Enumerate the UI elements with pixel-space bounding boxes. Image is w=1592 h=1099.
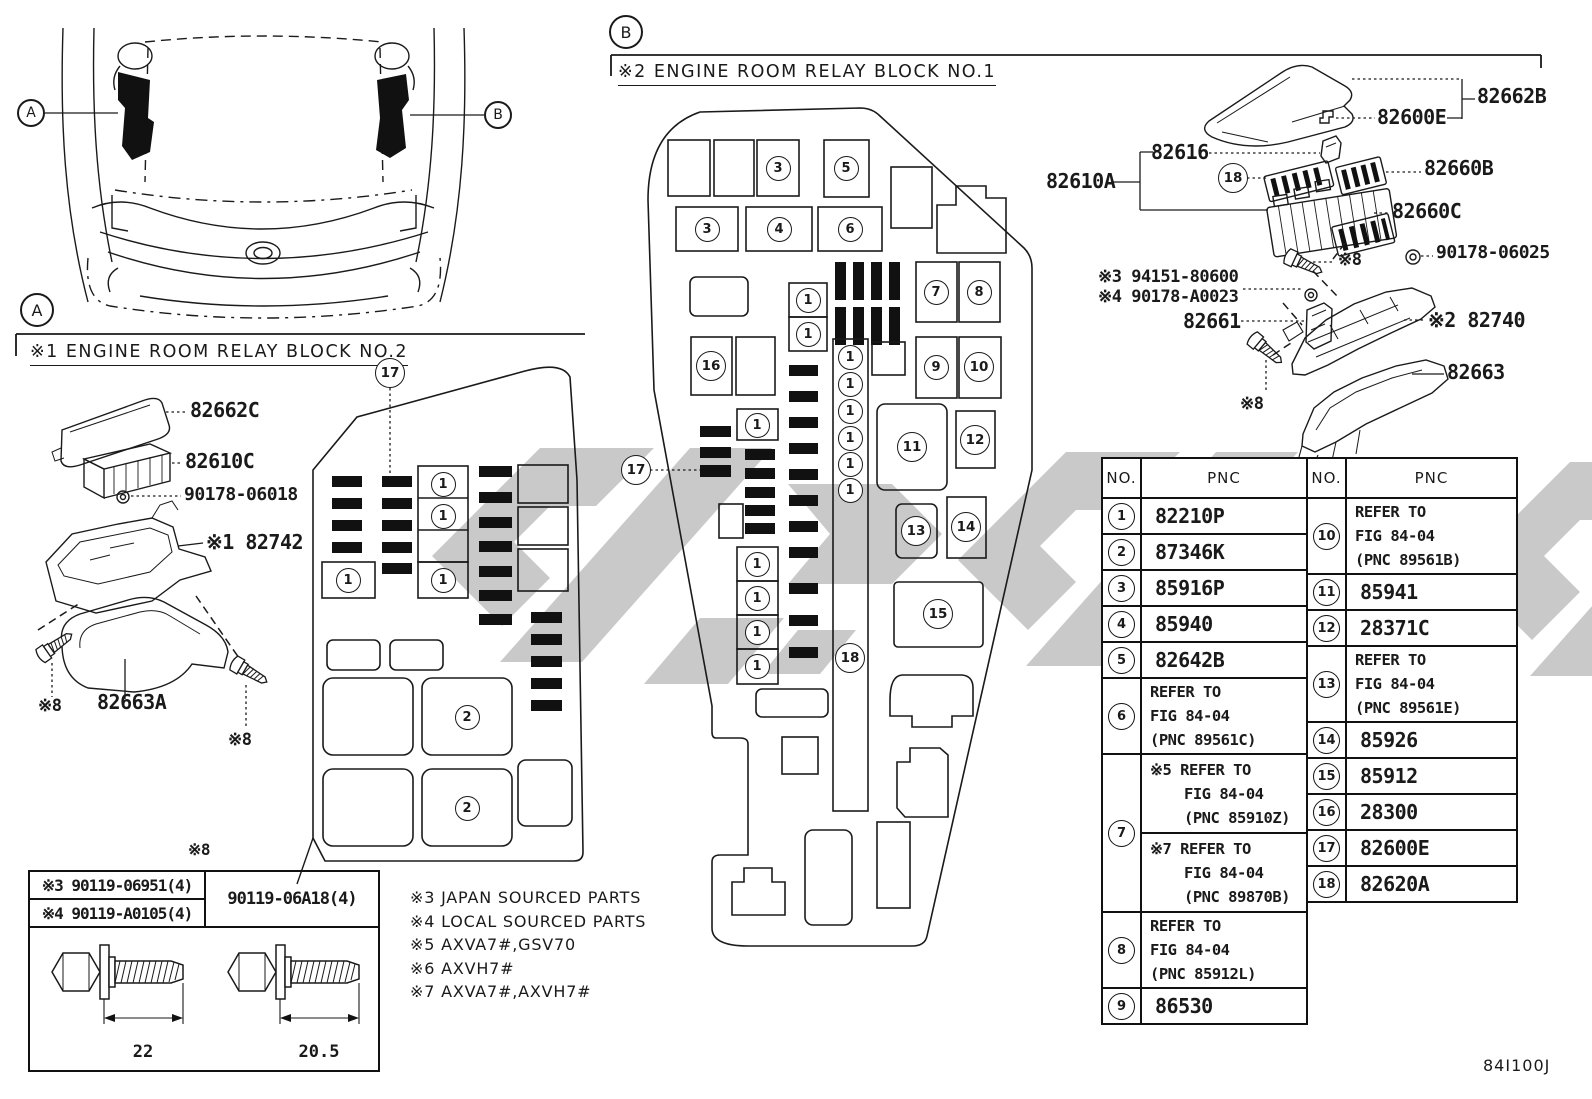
row-no-cell: 2 (1103, 535, 1142, 569)
row-number: 3 (1108, 575, 1135, 602)
callout-1: 1 (796, 322, 821, 347)
pnc-text: REFER TO (1347, 500, 1516, 524)
no-column-header: NO. (1103, 459, 1142, 497)
pnc-cell[interactable]: 28300 (1347, 795, 1516, 829)
part-label-82663[interactable]: 82663 (1447, 362, 1505, 383)
row-number: 1 (1108, 503, 1135, 530)
part-label-note8-b2[interactable]: ※8 (1240, 396, 1263, 414)
part-label-82610c[interactable]: 82610C (185, 451, 254, 472)
pnc-text: 28371C (1347, 616, 1516, 640)
pnc-text: 86530 (1142, 994, 1306, 1018)
row-no-cell: 14 (1308, 723, 1347, 757)
parts-row-1[interactable]: 182210P (1103, 497, 1306, 533)
row-no-cell: 3 (1103, 571, 1142, 605)
pnc-text: (PNC 89561B) (1347, 548, 1516, 572)
pnc-subcell: ※7 REFER TOFIG 84-04(PNC 89870B) (1142, 834, 1306, 911)
callout-6: 6 (838, 217, 863, 242)
diagram-code: 84I100J (1483, 1056, 1550, 1075)
parts-row-12[interactable]: 1228371C (1308, 609, 1516, 645)
row-number: 2 (1108, 539, 1135, 566)
bolt-part-number[interactable]: ※3 90119-06951(4) (30, 872, 204, 900)
pnc-text: ※7 REFER TO (1142, 837, 1306, 861)
parts-diagram-page: A B A B ※1 ENGINE ROOM RELAY BLOCK NO.2 … (0, 0, 1592, 1099)
callout-14: 14 (951, 512, 981, 542)
pnc-cell[interactable]: 82600E (1347, 831, 1516, 865)
pnc-text: (PNC 89561E) (1347, 696, 1516, 720)
parts-row-10[interactable]: 10REFER TOFIG 84-04(PNC 89561B) (1308, 497, 1516, 573)
pnc-cell[interactable]: 87346K (1142, 535, 1306, 569)
parts-row-2[interactable]: 287346K (1103, 533, 1306, 569)
pnc-text: (PNC 85910Z) (1142, 806, 1306, 830)
pnc-cell[interactable]: 82642B (1142, 643, 1306, 677)
part-label-note8-a1[interactable]: ※8 (38, 698, 61, 716)
row-number: 12 (1313, 615, 1340, 642)
pnc-cell[interactable]: 85926 (1347, 723, 1516, 757)
note-line: ※5 AXVA7#,GSV70 (410, 933, 646, 957)
row-no-cell: 10 (1308, 499, 1347, 573)
callout-18: 18 (1218, 163, 1248, 193)
row-no-cell: 8 (1103, 913, 1142, 987)
bolt-length-dimension: 22 (133, 1042, 153, 1062)
callout-1: 1 (838, 372, 863, 397)
pnc-cell[interactable]: REFER TOFIG 84-04(PNC 89561C) (1142, 679, 1306, 753)
part-label-82662b[interactable]: 82662B (1477, 86, 1546, 107)
row-number: 10 (1313, 523, 1340, 550)
bolt-length-dimension: 20.5 (299, 1042, 340, 1062)
callout-13: 13 (901, 516, 931, 546)
callout-17: 17 (375, 358, 405, 388)
part-label-note8-b1[interactable]: ※8 (1338, 252, 1361, 270)
row-no-cell: 13 (1308, 647, 1347, 721)
pnc-text: (PNC 89870B) (1142, 885, 1306, 909)
pnc-cell[interactable]: 28371C (1347, 611, 1516, 645)
parts-row-9[interactable]: 986530 (1103, 987, 1306, 1023)
callout-1: 1 (745, 586, 770, 611)
row-number: 11 (1313, 579, 1340, 606)
parts-table-right: NO. PNC 10REFER TOFIG 84-04(PNC 89561B)1… (1306, 457, 1518, 903)
callout-1: 1 (431, 472, 456, 497)
pnc-cell[interactable]: 82620A (1347, 867, 1516, 901)
part-label-94151-80600[interactable]: ※3 94151-80600 (1098, 269, 1238, 287)
pnc-text: 82642B (1142, 648, 1306, 672)
pnc-cell[interactable]: 85916P (1142, 571, 1306, 605)
callout-1: 1 (838, 345, 863, 370)
row-number: 16 (1313, 799, 1340, 826)
callout-1: 1 (336, 568, 361, 593)
pnc-subcell: ※5 REFER TOFIG 84-04(PNC 85910Z) (1142, 755, 1306, 834)
callout-1: 1 (431, 504, 456, 529)
parts-row-7[interactable]: 7※5 REFER TOFIG 84-04(PNC 85910Z)※7 REFE… (1103, 753, 1306, 911)
parts-row-4[interactable]: 485940 (1103, 605, 1306, 641)
section-b-marker: B (609, 15, 643, 49)
pnc-text: 82210P (1142, 504, 1306, 528)
pnc-column-header: PNC (1142, 459, 1306, 497)
callout-10: 10 (964, 352, 994, 382)
row-no-cell: 7 (1103, 755, 1142, 911)
row-no-cell: 17 (1308, 831, 1347, 865)
part-label-82660b[interactable]: 82660B (1424, 158, 1493, 179)
bolt-part-number[interactable]: 90119-06A18(4) (206, 872, 378, 926)
callout-1: 1 (838, 426, 863, 451)
row-number: 7 (1108, 820, 1135, 847)
pnc-cell[interactable]: 85912 (1347, 759, 1516, 793)
pnc-text: FIG 84-04 (1347, 672, 1516, 696)
no-column-header: NO. (1308, 459, 1347, 497)
callout-1: 1 (838, 452, 863, 477)
pnc-text: REFER TO (1142, 680, 1306, 704)
row-no-cell: 6 (1103, 679, 1142, 753)
row-number: 4 (1108, 611, 1135, 638)
part-label-82610a[interactable]: 82610A (1046, 171, 1115, 192)
note-line: ※6 AXVH7# (410, 957, 646, 981)
callout-15: 15 (923, 599, 953, 629)
pnc-column-header: PNC (1347, 459, 1516, 497)
note-line: ※3 JAPAN SOURCED PARTS (410, 886, 646, 910)
pnc-text: 82620A (1347, 872, 1516, 896)
parts-table-left: NO. PNC 182210P287346K385916P48594058264… (1101, 457, 1308, 1025)
row-no-cell: 15 (1308, 759, 1347, 793)
callout-1: 1 (745, 654, 770, 679)
callout-3: 3 (766, 156, 791, 181)
parts-row-14[interactable]: 1485926 (1308, 721, 1516, 757)
part-label-90178-06018[interactable]: 90178-06018 (184, 486, 298, 505)
row-no-cell: 5 (1103, 643, 1142, 677)
callout-3: 3 (695, 217, 720, 242)
car-callout-b: B (484, 101, 512, 129)
callout-1: 1 (745, 620, 770, 645)
row-number: 15 (1313, 763, 1340, 790)
part-label-82662c[interactable]: 82662C (190, 400, 259, 421)
row-number: 8 (1108, 937, 1135, 964)
callout-12: 12 (960, 425, 990, 455)
callout-1: 1 (838, 399, 863, 424)
pnc-text: REFER TO (1347, 648, 1516, 672)
callout-4: 4 (767, 217, 792, 242)
section-a-marker: A (20, 293, 54, 327)
callout-9: 9 (924, 355, 949, 380)
part-label-82661[interactable]: 82661 (1183, 311, 1241, 332)
pnc-text: FIG 84-04 (1142, 938, 1306, 962)
row-number: 14 (1313, 727, 1340, 754)
section-a-title: ※1 ENGINE ROOM RELAY BLOCK NO.2 (30, 342, 408, 366)
pnc-text: ※5 REFER TO (1142, 758, 1306, 782)
row-number: 5 (1108, 647, 1135, 674)
pnc-text: REFER TO (1142, 914, 1306, 938)
callout-11: 11 (897, 432, 927, 462)
row-number: 13 (1313, 671, 1340, 698)
pnc-text: 85940 (1142, 612, 1306, 636)
row-no-cell: 12 (1308, 611, 1347, 645)
parts-row-8[interactable]: 8REFER TOFIG 84-04(PNC 85912L) (1103, 911, 1306, 987)
note-line: ※7 AXVA7#,AXVH7# (410, 980, 646, 1004)
pnc-text: (PNC 89561C) (1142, 728, 1306, 752)
callout-7: 7 (924, 280, 949, 305)
row-no-cell: 9 (1103, 989, 1142, 1023)
parts-row-16[interactable]: 1628300 (1308, 793, 1516, 829)
pnc-text: 82600E (1347, 836, 1516, 860)
part-label-90178-a0023[interactable]: ※4 90178-A0023 (1098, 289, 1238, 307)
car-callout-a: A (17, 99, 45, 127)
pnc-text: 85941 (1347, 580, 1516, 604)
part-label-82742[interactable]: ※1 82742 (206, 532, 303, 553)
bolt-table-header: ※3 90119-06951(4) ※4 90119-A0105(4) 9011… (30, 872, 378, 928)
callout-17: 17 (621, 455, 651, 485)
callout-2: 2 (455, 705, 480, 730)
parts-row-5[interactable]: 582642B (1103, 641, 1306, 677)
pnc-cell[interactable]: 86530 (1142, 989, 1306, 1023)
callout-5: 5 (834, 156, 859, 181)
part-label-90178-06025[interactable]: 90178-06025 (1436, 244, 1550, 263)
part-label-82600e[interactable]: 82600E (1377, 107, 1446, 128)
pnc-cell[interactable]: 82210P (1142, 499, 1306, 533)
parts-row-17[interactable]: 1782600E (1308, 829, 1516, 865)
row-number: 18 (1313, 871, 1340, 898)
callout-1: 1 (796, 288, 821, 313)
part-label-note8-a2[interactable]: ※8 (228, 732, 251, 750)
row-number: 9 (1108, 993, 1135, 1020)
parts-row-6[interactable]: 6REFER TOFIG 84-04(PNC 89561C) (1103, 677, 1306, 753)
pnc-text: FIG 84-04 (1142, 704, 1306, 728)
row-no-cell: 11 (1308, 575, 1347, 609)
row-number: 17 (1313, 835, 1340, 862)
callout-8: 8 (967, 280, 992, 305)
callout-16: 16 (696, 351, 726, 381)
pnc-cell[interactable]: REFER TOFIG 84-04(PNC 89561E) (1347, 647, 1516, 721)
pnc-text: FIG 84-04 (1142, 861, 1306, 885)
pnc-cell[interactable]: REFER TOFIG 84-04(PNC 85912L) (1142, 913, 1306, 987)
parts-row-13[interactable]: 13REFER TOFIG 84-04(PNC 89561E) (1308, 645, 1516, 721)
part-label-82663a[interactable]: 82663A (97, 692, 166, 713)
part-label-82616[interactable]: 82616 (1151, 142, 1209, 163)
car-front-drawing (62, 28, 465, 318)
pnc-cell[interactable]: REFER TOFIG 84-04(PNC 89561B) (1347, 499, 1516, 573)
callout-1: 1 (838, 478, 863, 503)
note-line: ※4 LOCAL SOURCED PARTS (410, 910, 646, 934)
callout-18: 18 (835, 643, 865, 673)
pnc-text: 28300 (1347, 800, 1516, 824)
pnc-text: 85912 (1347, 764, 1516, 788)
part-label-note8-table[interactable]: ※8 (188, 842, 210, 859)
section-b-title: ※2 ENGINE ROOM RELAY BLOCK NO.1 (618, 62, 996, 86)
section-brackets (16, 55, 1541, 356)
parts-row-15[interactable]: 1585912 (1308, 757, 1516, 793)
pnc-cell[interactable]: ※5 REFER TOFIG 84-04(PNC 85910Z)※7 REFER… (1142, 755, 1306, 911)
row-number: 6 (1108, 703, 1135, 730)
parts-row-18[interactable]: 1882620A (1308, 865, 1516, 901)
pnc-text: FIG 84-04 (1347, 524, 1516, 548)
bolt-part-number[interactable]: ※4 90119-A0105(4) (30, 900, 204, 926)
pnc-text: 85916P (1142, 576, 1306, 600)
pnc-text: 87346K (1142, 540, 1306, 564)
callout-1: 1 (745, 552, 770, 577)
notes-list: ※3 JAPAN SOURCED PARTS ※4 LOCAL SOURCED … (410, 886, 646, 1004)
pnc-cell[interactable]: 85940 (1142, 607, 1306, 641)
pnc-text: (PNC 85912L) (1142, 962, 1306, 986)
parts-row-3[interactable]: 385916P (1103, 569, 1306, 605)
row-no-cell: 18 (1308, 867, 1347, 901)
callout-1: 1 (745, 413, 770, 438)
callout-1: 1 (431, 568, 456, 593)
part-label-82660c[interactable]: 82660C (1392, 201, 1461, 222)
row-no-cell: 1 (1103, 499, 1142, 533)
parts-row-11[interactable]: 1185941 (1308, 573, 1516, 609)
pnc-cell[interactable]: 85941 (1347, 575, 1516, 609)
pnc-text: 85926 (1347, 728, 1516, 752)
row-no-cell: 4 (1103, 607, 1142, 641)
callout-2: 2 (455, 796, 480, 821)
part-label-82740[interactable]: ※2 82740 (1428, 310, 1525, 331)
row-no-cell: 16 (1308, 795, 1347, 829)
pnc-text: FIG 84-04 (1142, 782, 1306, 806)
